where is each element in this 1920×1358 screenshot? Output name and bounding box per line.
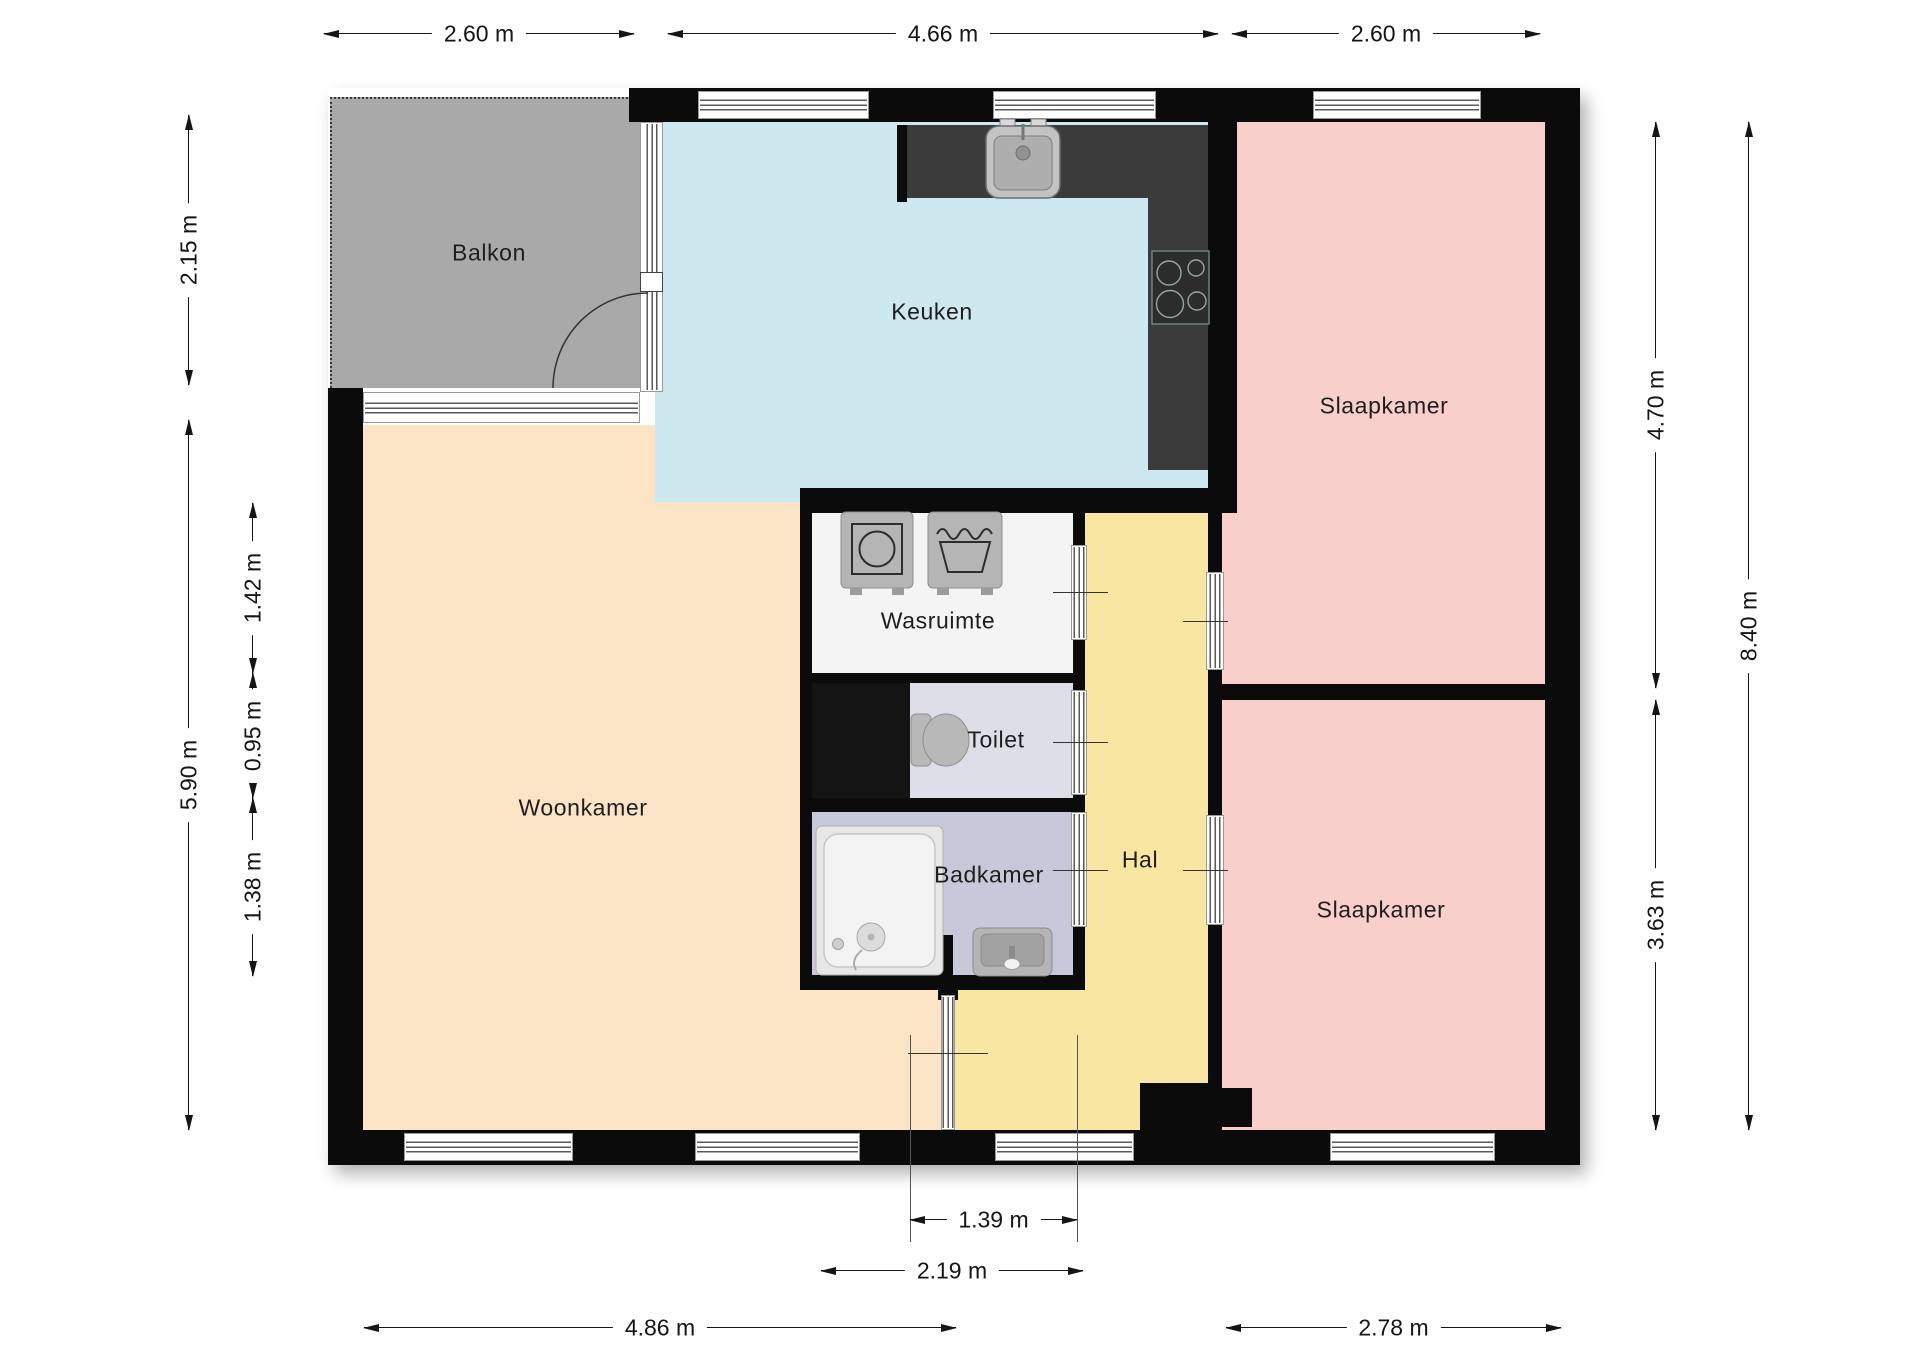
door-tick: [1183, 870, 1228, 871]
kitchen-counter-side: [1148, 198, 1208, 470]
dim-bottom-woonkamer: 4.86 m: [364, 1327, 956, 1328]
shaft-closet: [812, 683, 910, 798]
balcony-door: [640, 122, 663, 392]
wall-block-right: [1073, 503, 1085, 545]
door-tick: [1053, 742, 1108, 743]
dim-right-slaapkamer-boven: 4.70 m: [1655, 122, 1656, 688]
balcony-door-pivot: [640, 272, 663, 292]
front-door-side: [1222, 1088, 1252, 1127]
room-label-woonkamer: Woonkamer: [519, 795, 648, 822]
dim-leader-line: [1077, 1035, 1078, 1242]
dim-top-keuken: 4.66 m: [668, 33, 1218, 34]
wall-bath-stub: [920, 935, 953, 975]
door-tick: [1053, 592, 1108, 593]
wall-kitchen-bedroom: [1208, 122, 1237, 513]
window-kitchen-2: [993, 91, 1156, 119]
dim-right-total: 8.40 m: [1748, 122, 1749, 1130]
dim-right-slaapkamer-onder: 3.63 m: [1655, 700, 1656, 1130]
room-woonkamer-floor-2: [800, 990, 943, 1130]
room-hal-floor: [1085, 513, 1208, 990]
wall-counter-stub: [897, 125, 907, 202]
wall-bedroom-divider: [1208, 684, 1545, 700]
room-woonkamer-floor: [363, 425, 800, 1130]
window-living-2: [695, 1133, 860, 1161]
wall-right: [1545, 88, 1580, 1165]
wall-toilet-badkamer: [800, 798, 1085, 812]
room-label-toilet: Toilet: [967, 727, 1024, 754]
window-bedroom-bottom: [1330, 1133, 1495, 1161]
wall-kitchen-bottom: [800, 488, 1237, 513]
room-label-keuken: Keuken: [891, 299, 973, 326]
wall-wasruimte-toilet: [800, 673, 1085, 683]
room-wasruimte-floor: [812, 503, 1073, 673]
door-tick: [1053, 870, 1108, 871]
dim-bottom-hal: 1.39 m: [910, 1219, 1077, 1220]
room-label-balkon: Balkon: [452, 240, 526, 267]
dim-left-balkon: 2.15 m: [188, 115, 189, 385]
glass-partition-living-hal: [941, 995, 955, 1130]
window-hal: [995, 1133, 1134, 1161]
front-door: [1140, 1083, 1218, 1130]
room-label-badkamer: Badkamer: [934, 862, 1044, 889]
room-label-slaapkamer-onder: Slaapkamer: [1317, 897, 1446, 924]
dim-toilet: 0.95 m: [252, 673, 253, 798]
dim-bottom-slaapkamer: 2.78 m: [1226, 1327, 1561, 1328]
room-label-slaapkamer-boven: Slaapkamer: [1320, 393, 1449, 420]
dim-badkamer: 1.38 m: [252, 798, 253, 976]
dim-bottom-entry: 2.19 m: [821, 1270, 1083, 1271]
window-bedroom-top: [1313, 91, 1481, 119]
wall-block-left: [800, 503, 812, 990]
kitchen-counter-top: [907, 125, 1208, 198]
door-tick: [1183, 621, 1228, 622]
dim-wasruimte: 1.42 m: [252, 503, 253, 673]
dim-leader-line: [910, 1035, 911, 1242]
room-label-wasruimte: Wasruimte: [881, 608, 995, 635]
floor-plan: Balkon Keuken Slaapkamer Woonkamer Wasru…: [0, 0, 1920, 1358]
wall-left: [328, 388, 363, 1165]
partition-tick: [908, 1053, 988, 1054]
window-living-1: [404, 1133, 573, 1161]
room-label-hal: Hal: [1122, 847, 1158, 874]
wall-hal-bedroom: [1208, 513, 1222, 572]
dim-top-balkon: 2.60 m: [324, 33, 634, 34]
window-kitchen-1: [698, 91, 869, 119]
dim-left-woonkamer: 5.90 m: [188, 420, 189, 1130]
window-balcony-living: [363, 392, 640, 423]
dim-top-slaapkamer: 2.60 m: [1232, 33, 1540, 34]
